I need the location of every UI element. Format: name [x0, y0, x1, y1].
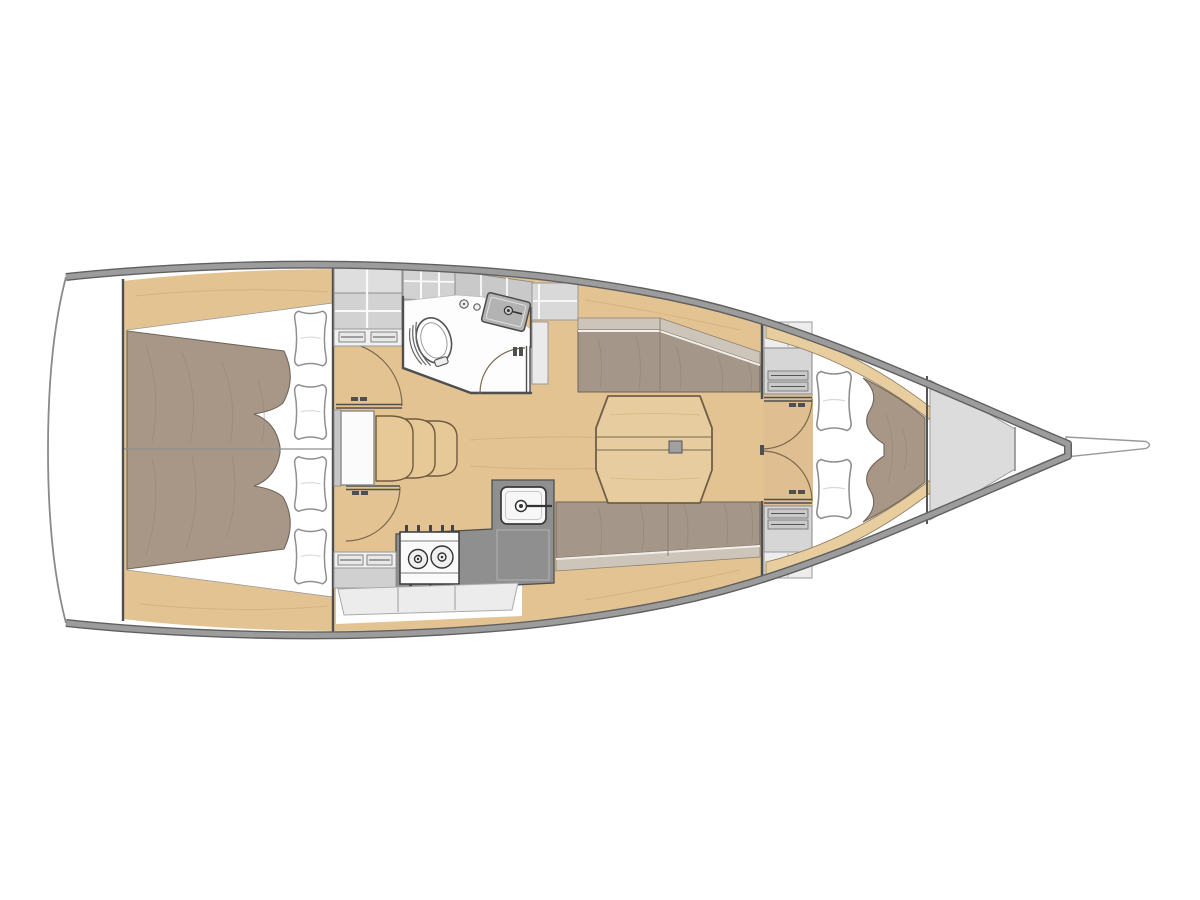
door-handle [351, 397, 358, 401]
door-handle [352, 491, 359, 495]
door-handle [798, 490, 805, 494]
pillow [295, 457, 327, 512]
door-handle [789, 490, 796, 494]
engine-hatch [341, 411, 374, 485]
locker [334, 568, 396, 588]
bulkhead-post [760, 445, 764, 455]
port-aft-lockers [334, 267, 402, 346]
hanging-locker [532, 322, 548, 384]
door-handle [361, 491, 368, 495]
companionway-steps [376, 416, 457, 481]
table-fitting [669, 441, 682, 453]
door-handle [798, 403, 805, 407]
pillow [817, 460, 851, 519]
step-1 [376, 416, 413, 481]
door-handle [513, 347, 517, 356]
yacht-deck-plan [0, 0, 1200, 900]
door-handle [789, 403, 796, 407]
galley-sink [501, 487, 552, 524]
pillow [295, 529, 327, 584]
pillow [295, 311, 327, 366]
forward-passage-floor [763, 394, 813, 506]
pillow [817, 372, 851, 431]
saloon-table [596, 396, 712, 503]
pillow [295, 385, 327, 440]
plinth [338, 583, 518, 615]
deck-plan-canvas [0, 0, 1200, 900]
aft-cabin [124, 303, 333, 597]
engine-hatch-strip [334, 410, 341, 486]
door-handle [360, 397, 367, 401]
door-handle [519, 347, 523, 356]
stove [400, 525, 459, 590]
